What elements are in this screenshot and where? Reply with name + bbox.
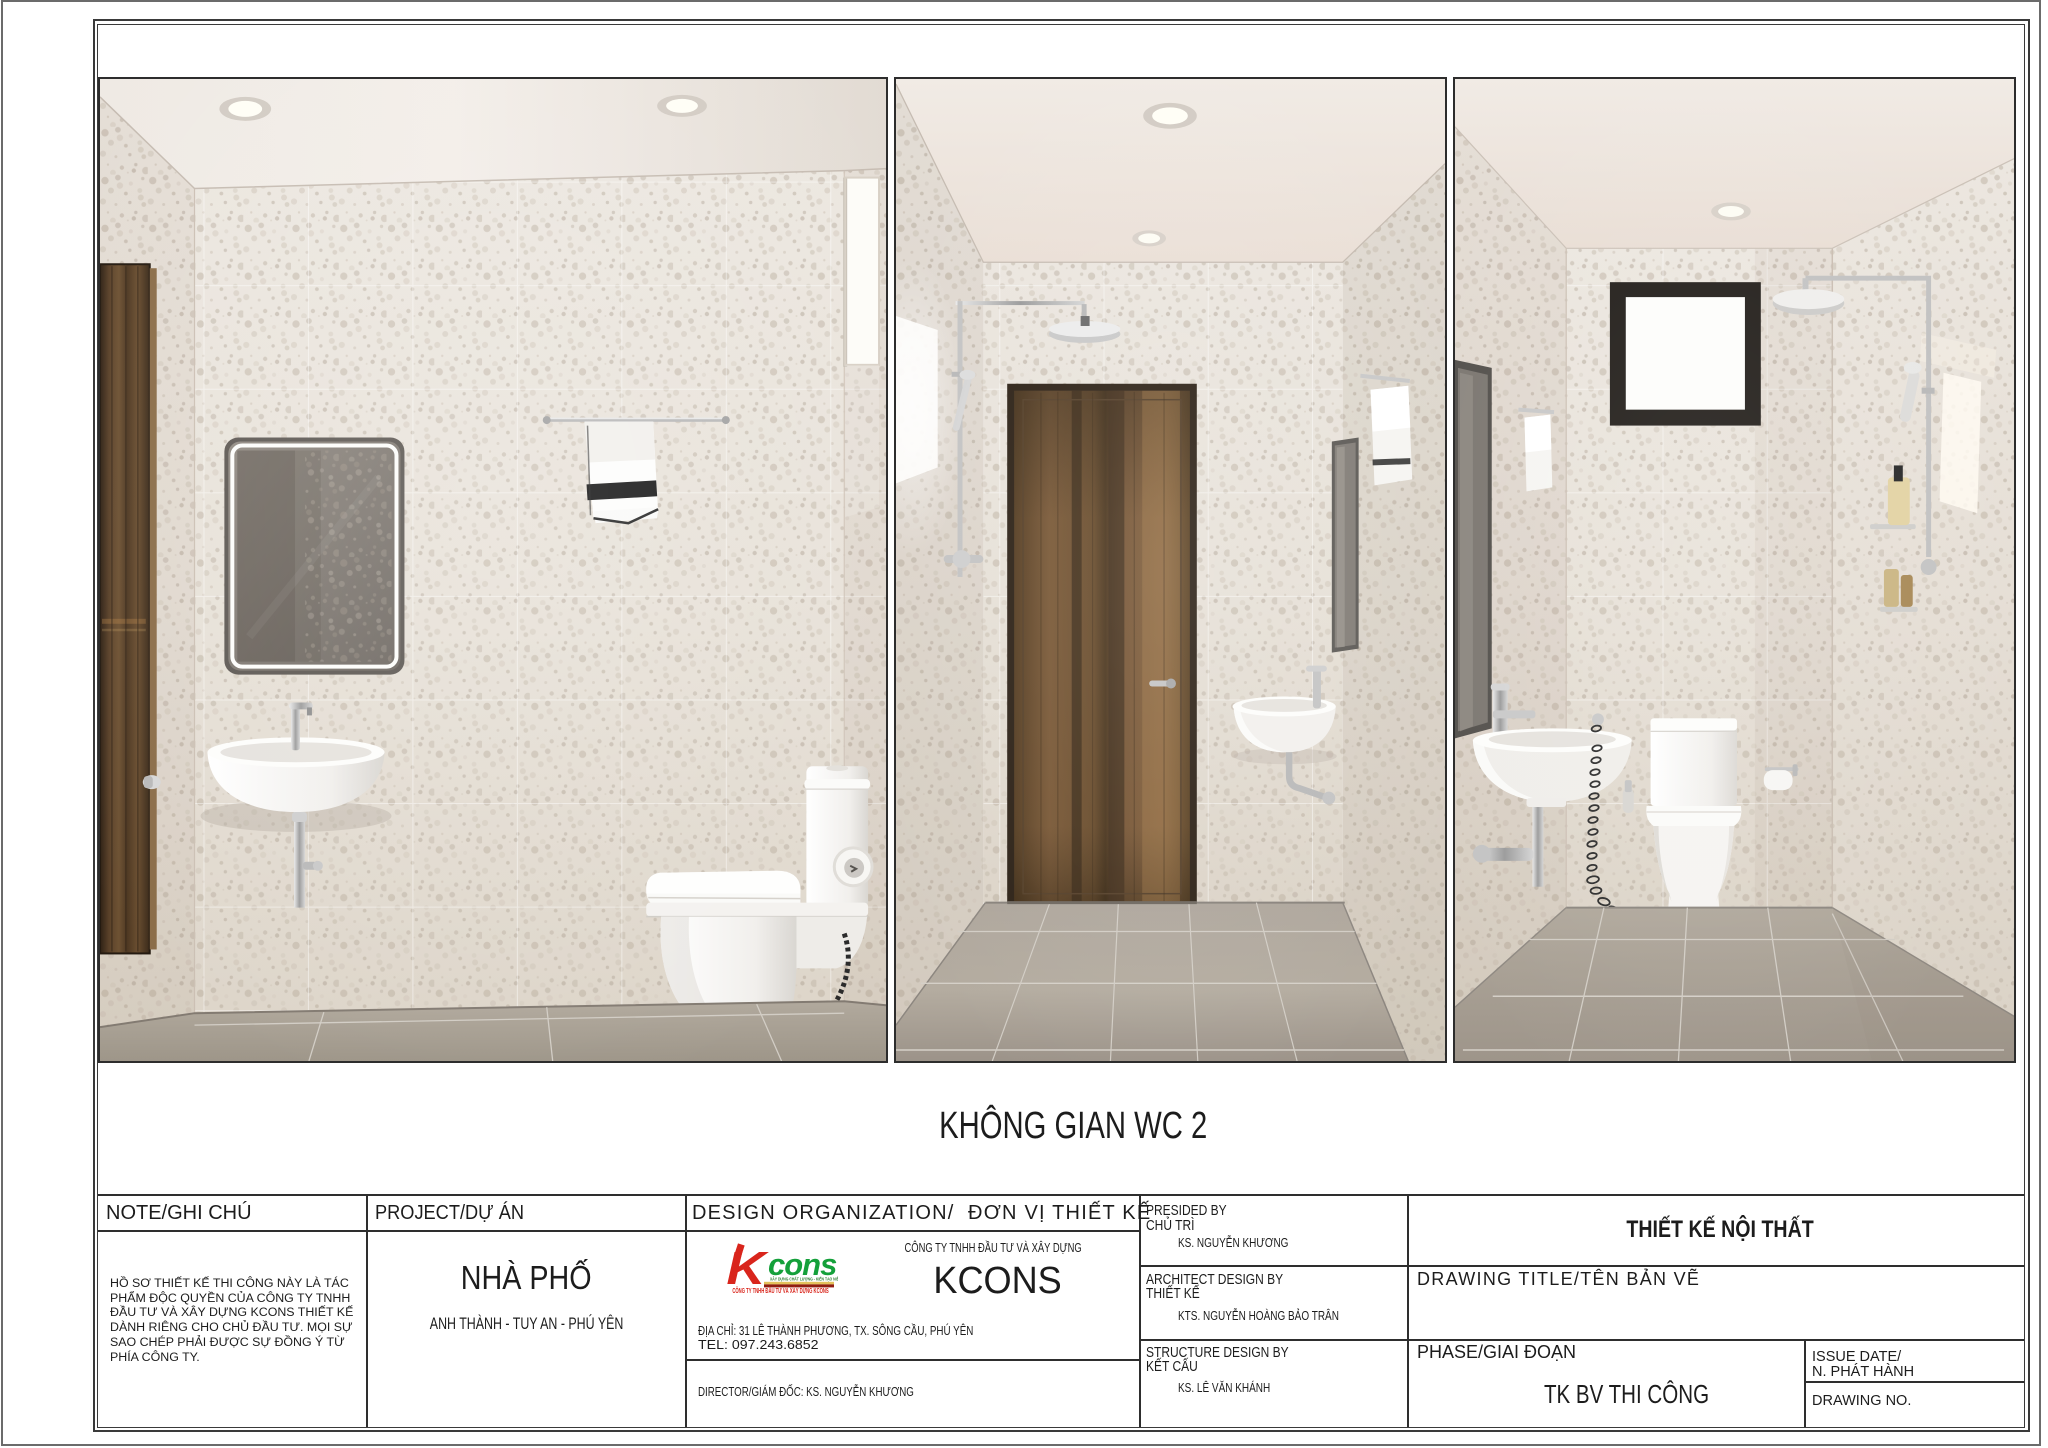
svg-text:XÂY DỰNG CHẤT LƯỢNG - KIẾN TẠO: XÂY DỰNG CHẤT LƯỢNG - KIẾN TẠO NIỀM TIN — [770, 1276, 838, 1282]
svg-text:K: K — [726, 1242, 769, 1294]
